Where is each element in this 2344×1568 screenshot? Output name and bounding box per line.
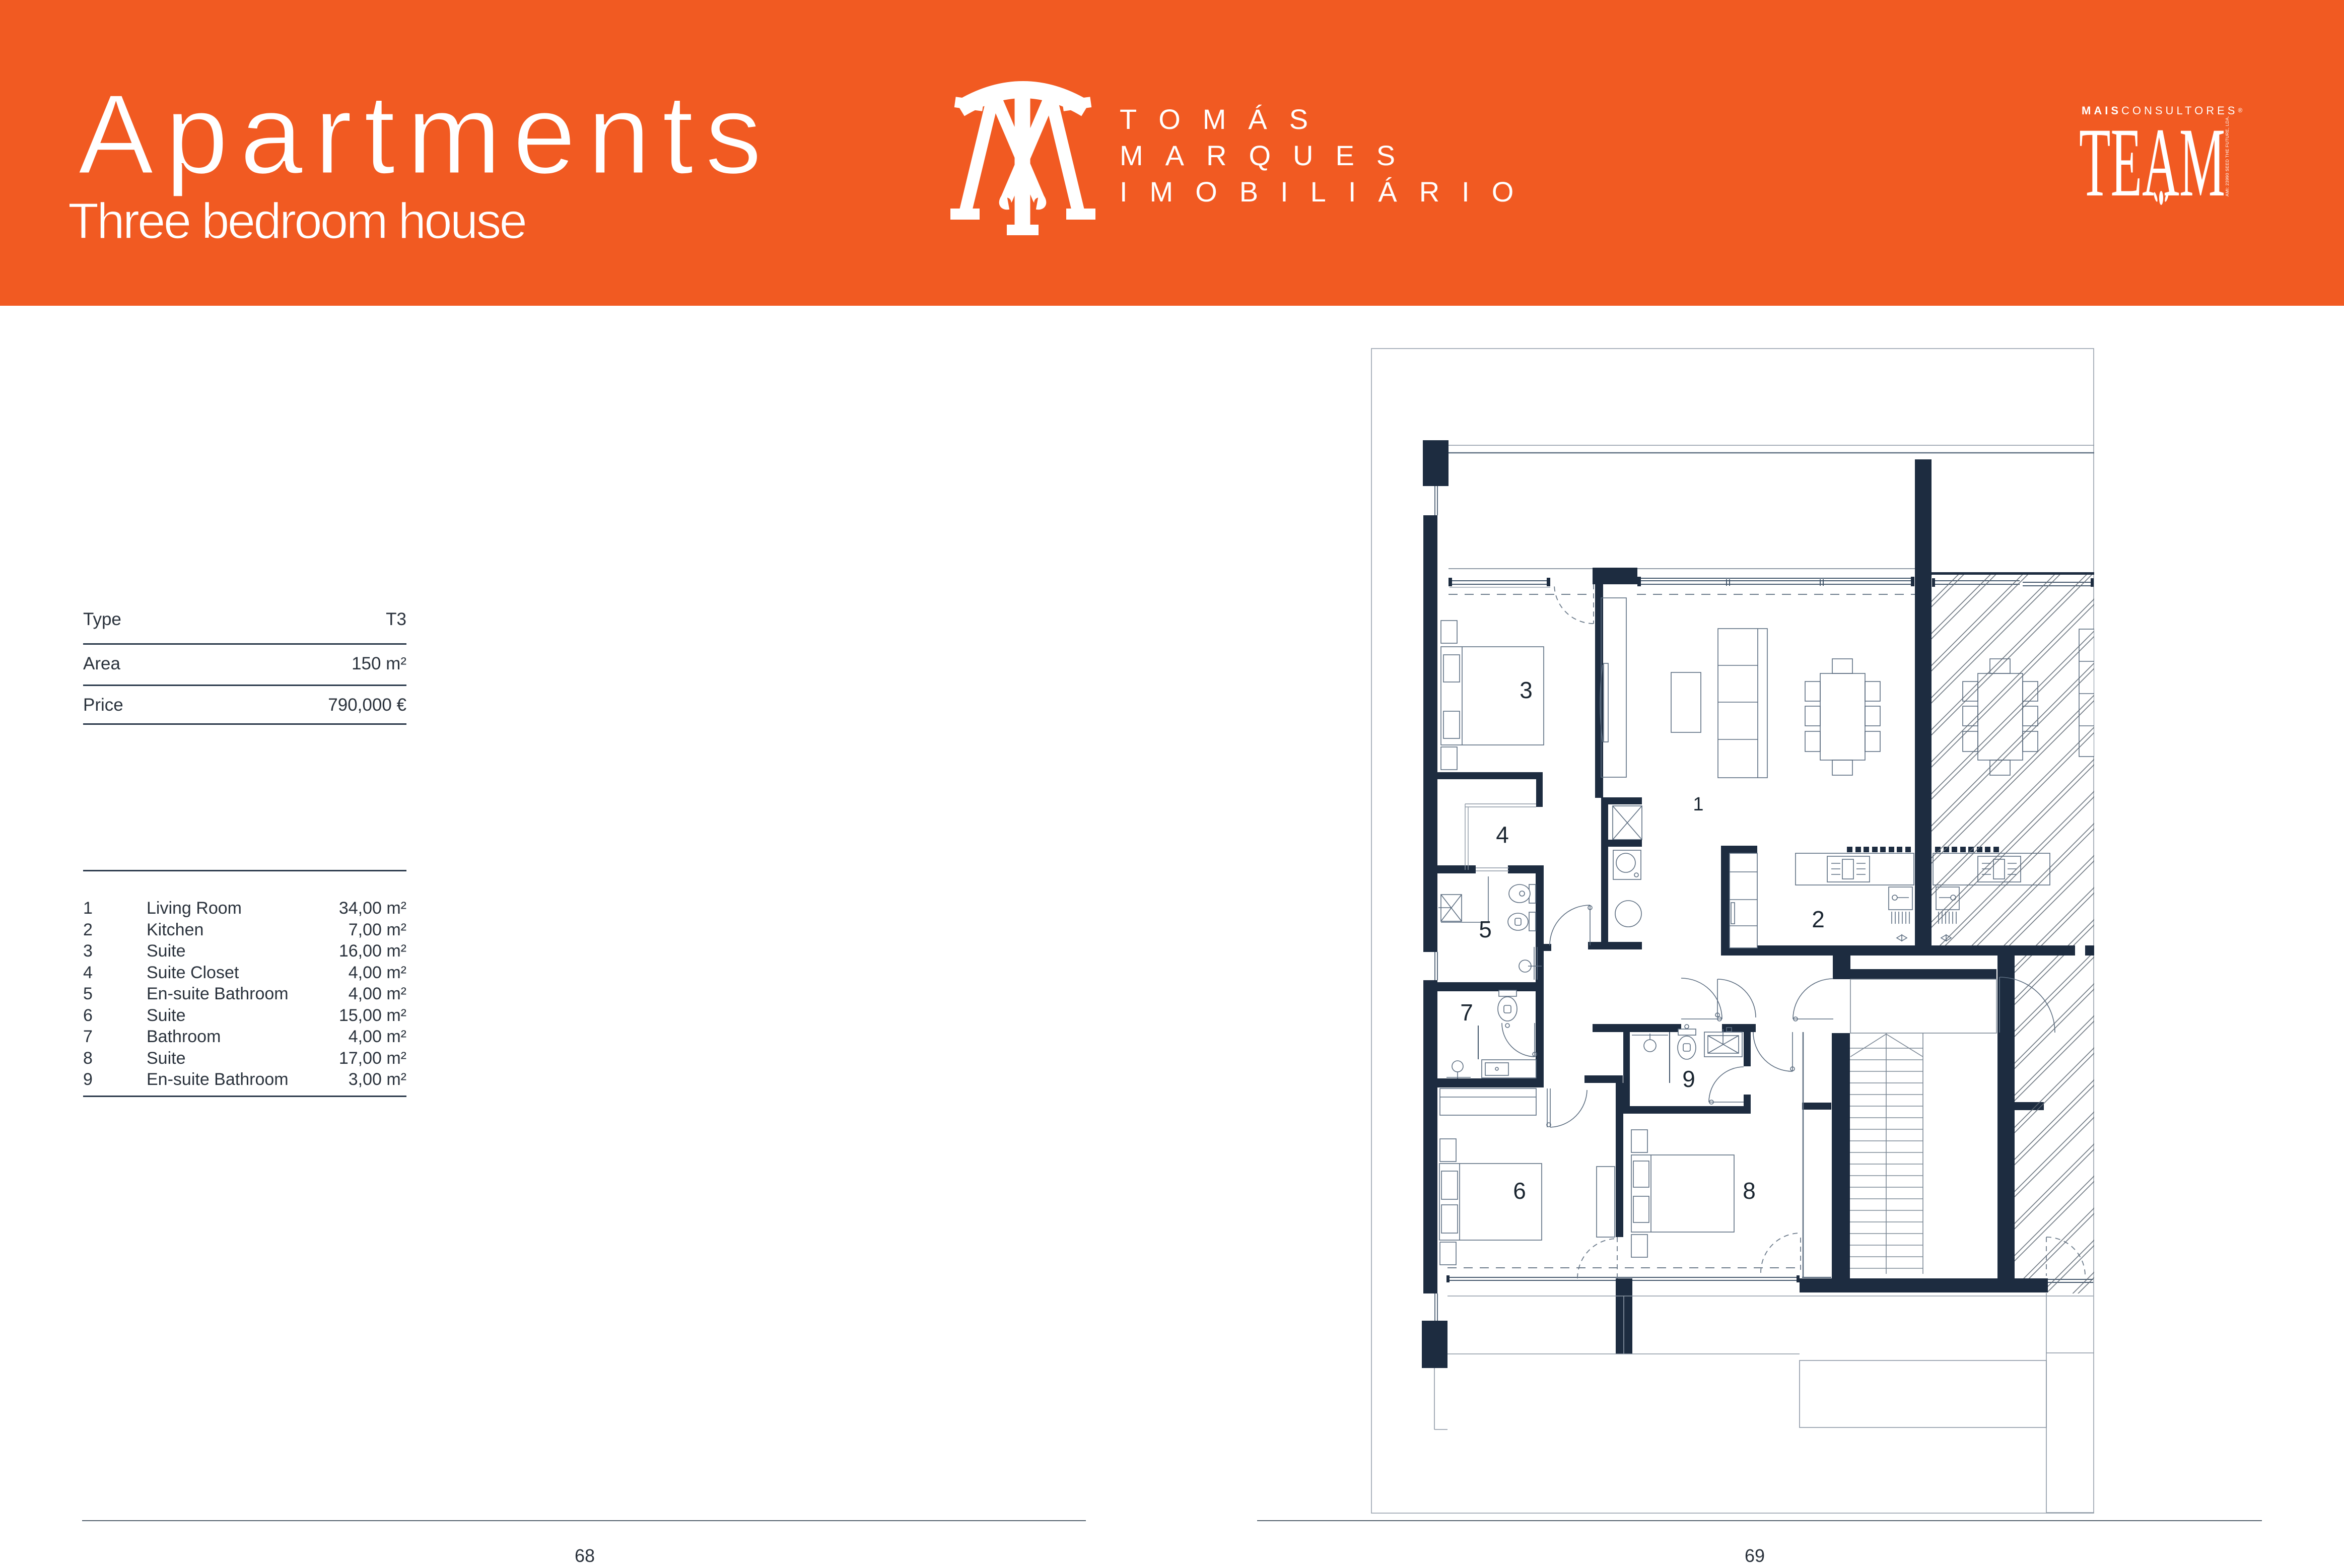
svg-text:6: 6	[1513, 1178, 1526, 1204]
svg-text:5: 5	[1479, 916, 1492, 942]
svg-text:7: 7	[1460, 999, 1473, 1026]
svg-text:8: 8	[1743, 1178, 1756, 1204]
svg-text:9: 9	[1682, 1066, 1695, 1092]
svg-text:2: 2	[1812, 906, 1825, 932]
svg-text:TEAM: TEAM	[2079, 108, 2225, 217]
svg-text:AMI: 23990 SEED THE FUTURE, L: AMI: 23990 SEED THE FUTURE, LDA.	[2225, 116, 2230, 196]
svg-text:4: 4	[1496, 822, 1509, 848]
svg-text:1: 1	[1693, 794, 1703, 815]
svg-text:3: 3	[1520, 677, 1533, 703]
